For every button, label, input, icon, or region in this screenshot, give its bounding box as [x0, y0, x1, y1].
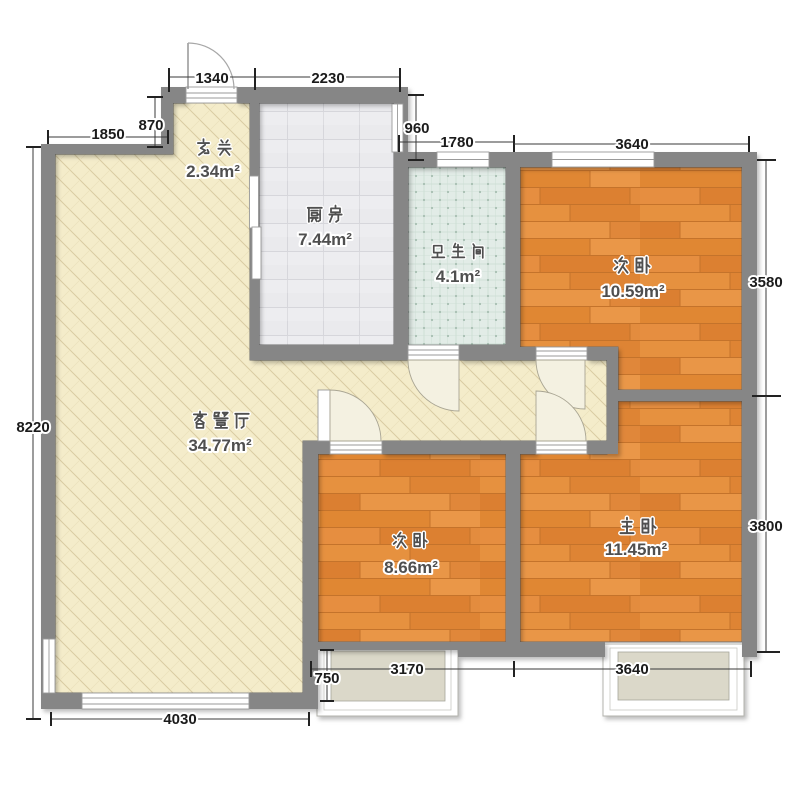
svg-text:2.34m²: 2.34m²	[186, 162, 240, 181]
svg-text:2230: 2230	[311, 70, 344, 87]
svg-text:11.45m²: 11.45m²	[605, 540, 668, 559]
svg-text:7.44m²: 7.44m²	[298, 230, 352, 249]
svg-text:3640: 3640	[615, 661, 648, 678]
svg-text:3170: 3170	[390, 661, 423, 678]
svg-text:8220: 8220	[16, 419, 49, 436]
svg-text:870: 870	[138, 117, 163, 134]
svg-text:34.77m²: 34.77m²	[188, 436, 252, 455]
svg-text:4.1m²: 4.1m²	[436, 267, 481, 286]
svg-text:8.66m²: 8.66m²	[384, 558, 438, 577]
svg-text:1780: 1780	[440, 134, 473, 151]
svg-text:960: 960	[404, 120, 429, 137]
svg-text:750: 750	[314, 670, 339, 687]
svg-text:1850: 1850	[91, 126, 124, 143]
svg-text:1340: 1340	[195, 70, 228, 87]
svg-text:3640: 3640	[615, 136, 648, 153]
svg-text:3580: 3580	[749, 274, 782, 291]
svg-text:4030: 4030	[163, 711, 196, 728]
svg-text:10.59m²: 10.59m²	[601, 282, 665, 301]
svg-text:3800: 3800	[749, 518, 782, 535]
